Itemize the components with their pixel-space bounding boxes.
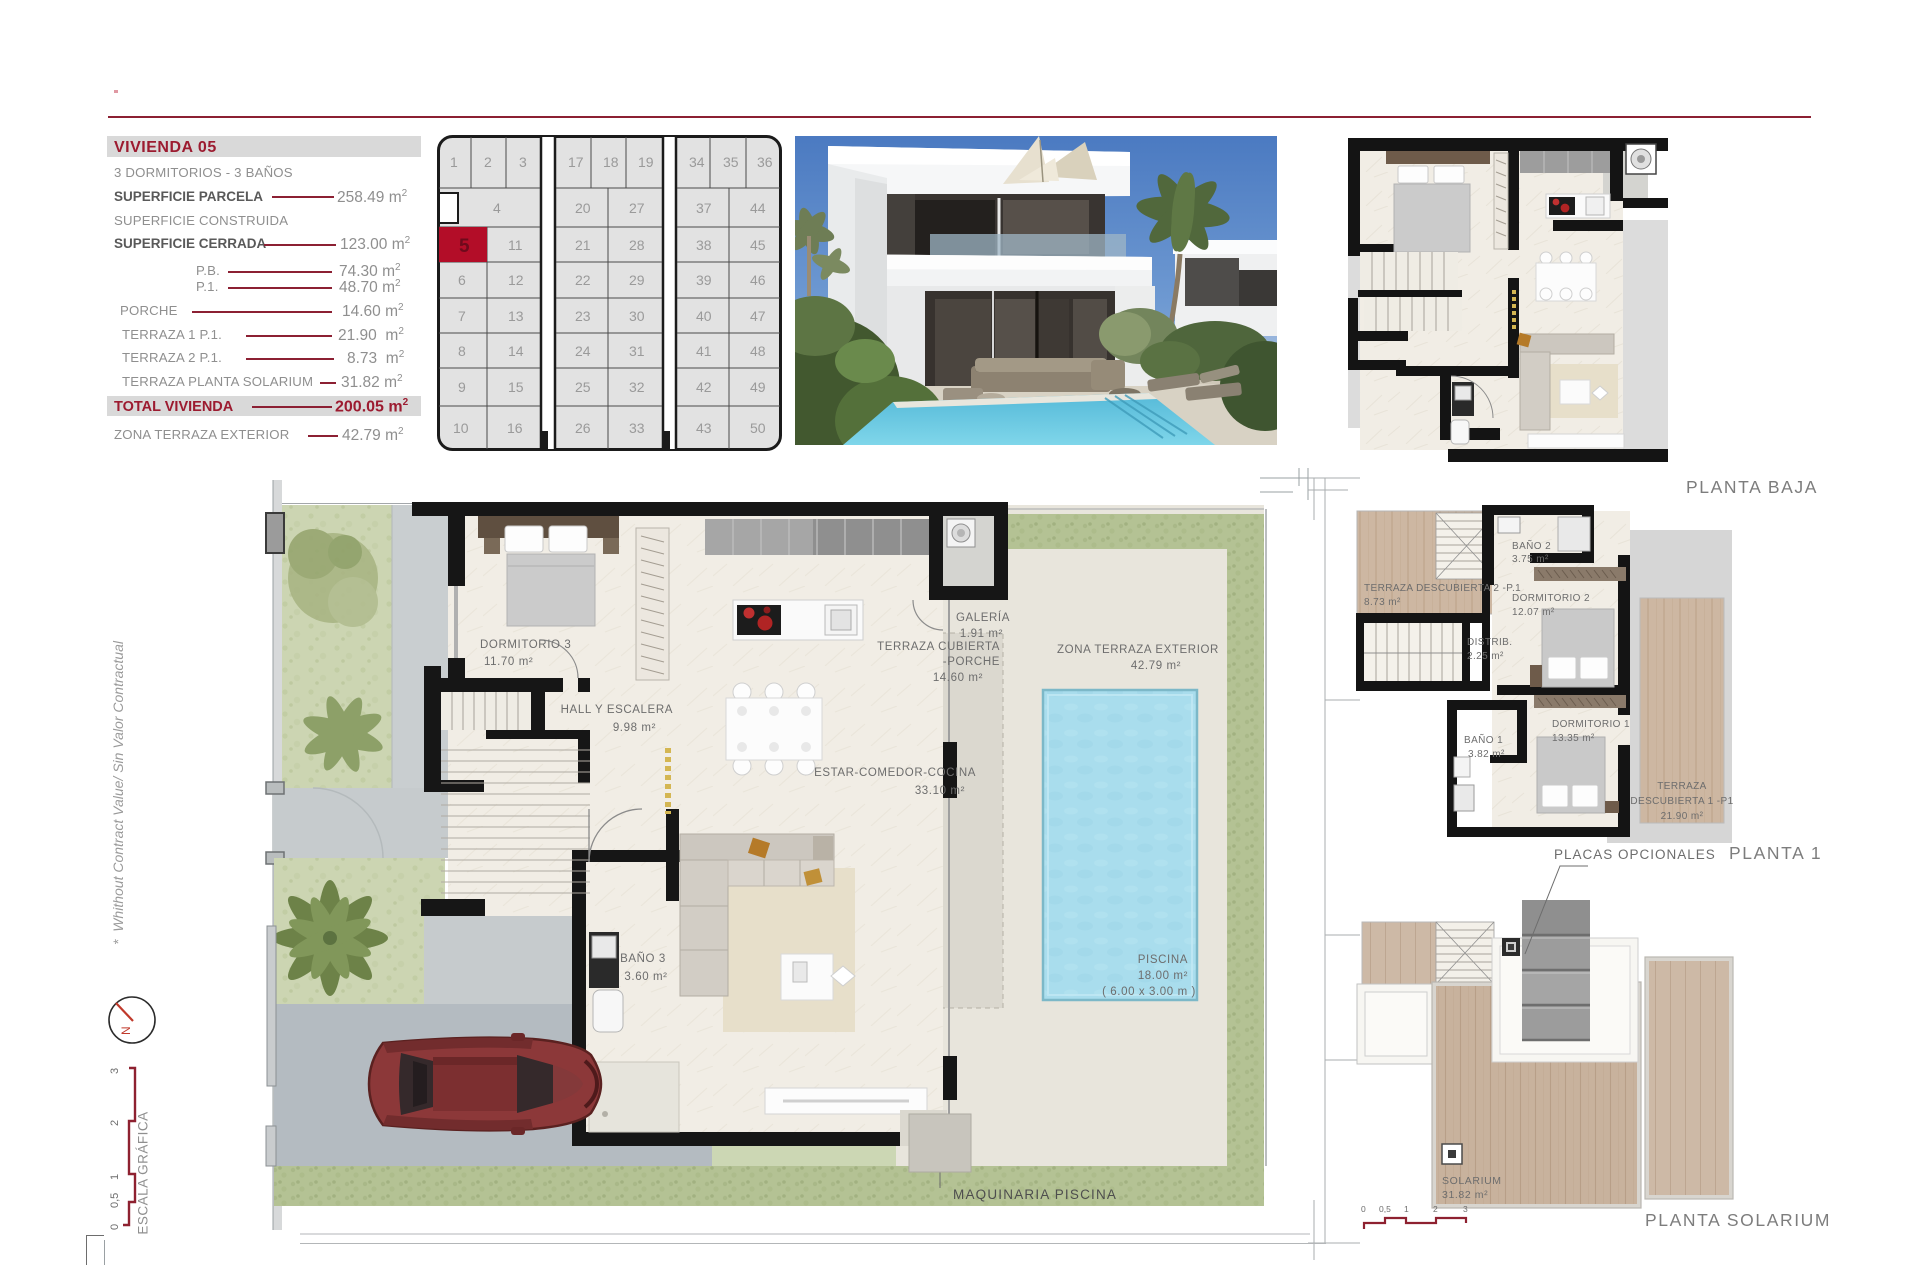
- svg-text:0: 0: [109, 1224, 121, 1230]
- svg-text:22: 22: [575, 272, 591, 288]
- svg-text:7: 7: [458, 308, 466, 324]
- svg-text:DORMITORIO 2: DORMITORIO 2: [1512, 593, 1590, 604]
- svg-text:8: 8: [458, 343, 466, 359]
- svg-text:49: 49: [750, 379, 766, 395]
- svg-text:24: 24: [575, 343, 591, 359]
- svg-text:TERRAZA CUBIERTA: TERRAZA CUBIERTA: [877, 641, 1000, 653]
- svg-text:37: 37: [696, 200, 712, 216]
- svg-text:48: 48: [750, 343, 766, 359]
- svg-text:35: 35: [723, 154, 739, 170]
- svg-text:DORMITORIO 1: DORMITORIO 1: [1552, 719, 1630, 730]
- svg-text:4: 4: [493, 200, 501, 216]
- svg-text:25: 25: [575, 379, 591, 395]
- svg-text:DORMITORIO 3: DORMITORIO 3: [480, 639, 571, 651]
- svg-text:44: 44: [750, 200, 766, 216]
- svg-text:21: 21: [575, 237, 591, 253]
- svg-text:5: 5: [459, 236, 470, 257]
- svg-text:15: 15: [508, 379, 524, 395]
- svg-text:30: 30: [629, 308, 645, 324]
- svg-text:SOLARIUM: SOLARIUM: [1442, 1175, 1502, 1187]
- svg-text:18: 18: [603, 154, 619, 170]
- svg-text:1.91 m²: 1.91 m²: [960, 628, 1003, 640]
- svg-text:43: 43: [696, 420, 712, 436]
- svg-text:14: 14: [508, 343, 524, 359]
- svg-text:ESTAR-COMEDOR-COCINA: ESTAR-COMEDOR-COCINA: [814, 767, 976, 779]
- svg-text:11: 11: [508, 237, 523, 253]
- svg-text:47: 47: [750, 308, 766, 324]
- svg-text:13.35 m²: 13.35 m²: [1552, 733, 1595, 744]
- svg-text:31: 31: [629, 343, 645, 359]
- svg-text:0,5: 0,5: [109, 1193, 121, 1208]
- svg-text:MAQUINARIA PISCINA: MAQUINARIA PISCINA: [953, 1187, 1117, 1202]
- svg-text:3.82 m²: 3.82 m²: [1468, 749, 1505, 760]
- svg-text:BAÑO 1: BAÑO 1: [1464, 733, 1503, 746]
- svg-text:33.10 m²: 33.10 m²: [915, 785, 965, 797]
- svg-text:-PORCHE: -PORCHE: [943, 656, 1000, 668]
- svg-text:12.07 m²: 12.07 m²: [1512, 607, 1555, 618]
- svg-text:32: 32: [629, 379, 645, 395]
- svg-text:TERRAZA: TERRAZA: [1657, 781, 1706, 792]
- svg-text:27: 27: [629, 200, 645, 216]
- svg-text:29: 29: [629, 272, 645, 288]
- svg-text:50: 50: [750, 420, 766, 436]
- svg-text:41: 41: [696, 343, 712, 359]
- svg-text:28: 28: [629, 237, 645, 253]
- svg-text:18.00 m²: 18.00 m²: [1138, 970, 1188, 982]
- svg-text:2: 2: [109, 1120, 121, 1126]
- svg-text:0,5: 0,5: [1379, 1204, 1391, 1214]
- svg-text:3.75 m²: 3.75 m²: [1512, 554, 1549, 565]
- svg-text:21.90 m²: 21.90 m²: [1661, 811, 1704, 822]
- svg-text:14.60 m²: 14.60 m²: [933, 672, 983, 684]
- svg-text:3: 3: [519, 154, 527, 170]
- svg-text:46: 46: [750, 272, 766, 288]
- svg-text:9.98 m²: 9.98 m²: [613, 722, 656, 734]
- svg-text:19: 19: [638, 154, 654, 170]
- svg-text:( 6.00 x 3.00 m ): ( 6.00 x 3.00 m ): [1102, 986, 1196, 998]
- svg-text:39: 39: [696, 272, 712, 288]
- svg-text:0: 0: [1361, 1204, 1366, 1214]
- svg-text:GALERÍA: GALERÍA: [956, 611, 1010, 624]
- svg-text:3.60 m²: 3.60 m²: [624, 971, 667, 983]
- svg-text:DESCUBIERTA 1 -P1: DESCUBIERTA 1 -P1: [1630, 796, 1733, 807]
- svg-text:16: 16: [507, 420, 523, 436]
- svg-text:42.79 m²: 42.79 m²: [1131, 660, 1181, 672]
- svg-text:2.25 m²: 2.25 m²: [1467, 651, 1504, 662]
- svg-text:33: 33: [629, 420, 645, 436]
- svg-text:2: 2: [1433, 1204, 1438, 1214]
- svg-text:36: 36: [757, 154, 773, 170]
- svg-text:PISCINA: PISCINA: [1138, 954, 1188, 966]
- svg-text:2: 2: [484, 154, 492, 170]
- svg-text:34: 34: [689, 154, 705, 170]
- svg-text:9: 9: [458, 379, 466, 395]
- svg-text:BAÑO 3: BAÑO 3: [620, 952, 666, 965]
- svg-text:HALL Y ESCALERA: HALL Y ESCALERA: [561, 704, 673, 716]
- svg-text:45: 45: [750, 237, 766, 253]
- svg-text:12: 12: [508, 272, 524, 288]
- svg-text:31.82 m²: 31.82 m²: [1442, 1189, 1488, 1201]
- svg-text:3: 3: [109, 1068, 121, 1074]
- svg-text:6: 6: [458, 272, 466, 288]
- svg-text:8.73 m²: 8.73 m²: [1364, 597, 1401, 608]
- svg-text:26: 26: [575, 420, 591, 436]
- svg-text:TERRAZA DESCUBIERTA 2 -P.1: TERRAZA DESCUBIERTA 2 -P.1: [1364, 583, 1521, 594]
- svg-text:1: 1: [450, 154, 458, 170]
- svg-text:11.70 m²: 11.70 m²: [484, 656, 533, 668]
- svg-text:DISTRIB.: DISTRIB.: [1467, 637, 1512, 648]
- svg-text:40: 40: [696, 308, 712, 324]
- svg-text:42: 42: [696, 379, 712, 395]
- svg-text:ZONA TERRAZA EXTERIOR: ZONA TERRAZA EXTERIOR: [1057, 644, 1219, 656]
- svg-text:17: 17: [568, 154, 584, 170]
- svg-text:10: 10: [453, 420, 469, 436]
- svg-text:BAÑO 2: BAÑO 2: [1512, 539, 1551, 552]
- svg-text:3: 3: [1463, 1204, 1468, 1214]
- svg-text:23: 23: [575, 308, 591, 324]
- svg-text:1: 1: [1404, 1204, 1409, 1214]
- svg-text:1: 1: [109, 1174, 121, 1180]
- svg-text:13: 13: [508, 308, 524, 324]
- svg-text:20: 20: [575, 200, 591, 216]
- svg-text:38: 38: [696, 237, 712, 253]
- svg-text:N: N: [119, 1026, 133, 1035]
